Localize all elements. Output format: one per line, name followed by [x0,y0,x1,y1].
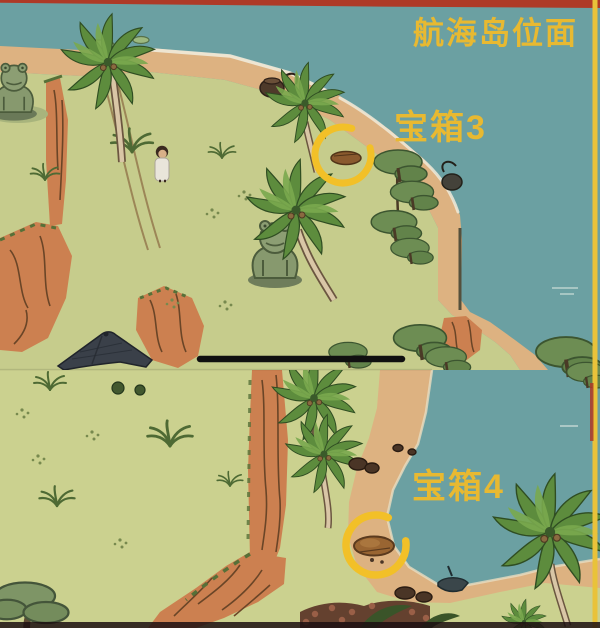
island-map-illustration: 航海岛位面 宝箱3 宝箱4 [0,0,600,628]
cliff-ridge [248,370,288,558]
villager-character [155,146,169,181]
border-bottom-dark [0,622,600,628]
border-right-yellow [593,0,598,628]
treasure-label-3: 宝箱3 [394,109,487,147]
screenshot-root: 航海岛位面 宝箱3 宝箱4 [0,0,600,628]
treasure-label-4: 宝箱4 [412,468,505,506]
small-bush [112,382,124,394]
bottom-map-panel [0,354,600,628]
small-bush [135,385,145,395]
border-right-red-segment [590,383,594,441]
panel-seam [0,369,432,371]
area-title: 航海岛位面 [413,16,578,51]
treasure-mound-3 [331,152,361,165]
top-map-panel [0,0,600,374]
